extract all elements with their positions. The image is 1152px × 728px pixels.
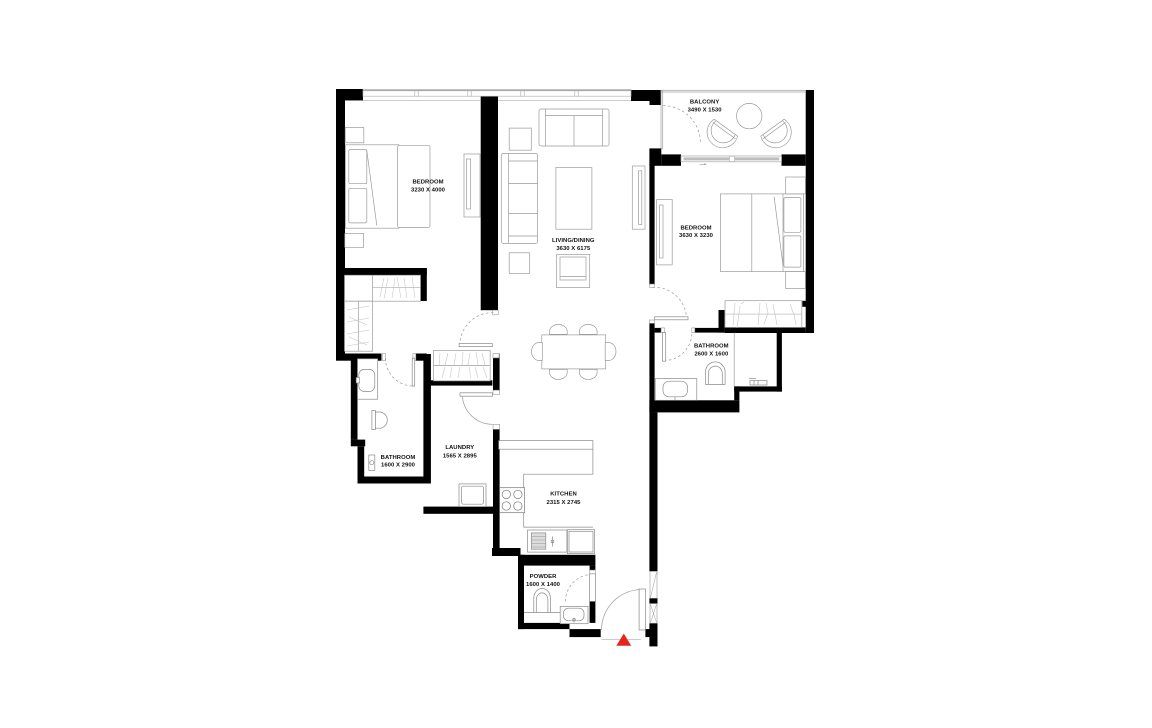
svg-text:BEDROOM: BEDROOM bbox=[680, 226, 711, 232]
svg-text:1565 X 2895: 1565 X 2895 bbox=[443, 454, 478, 460]
svg-text:3630 X 6175: 3630 X 6175 bbox=[556, 246, 591, 252]
svg-text:POWDER: POWDER bbox=[530, 574, 558, 580]
svg-text:LAUNDRY: LAUNDRY bbox=[445, 445, 474, 451]
svg-text:LIVING/DINING: LIVING/DINING bbox=[552, 238, 595, 244]
svg-text:BEDROOM: BEDROOM bbox=[412, 180, 443, 186]
svg-text:BATHROOM: BATHROOM bbox=[381, 455, 416, 461]
svg-text:1600 X 1400: 1600 X 1400 bbox=[526, 582, 561, 588]
svg-text:2315 X 2745: 2315 X 2745 bbox=[547, 500, 582, 506]
svg-text:BATHROOM: BATHROOM bbox=[694, 343, 729, 349]
svg-text:3230 X 4000: 3230 X 4000 bbox=[411, 187, 446, 193]
svg-text:BALCONY: BALCONY bbox=[690, 100, 719, 106]
svg-text:3490 X 1530: 3490 X 1530 bbox=[688, 107, 723, 113]
svg-text:2600 X 1600: 2600 X 1600 bbox=[694, 351, 729, 357]
svg-text:KITCHEN: KITCHEN bbox=[550, 491, 577, 497]
svg-text:1600 X 2900: 1600 X 2900 bbox=[381, 463, 416, 469]
svg-text:3630 X 3230: 3630 X 3230 bbox=[679, 233, 714, 239]
